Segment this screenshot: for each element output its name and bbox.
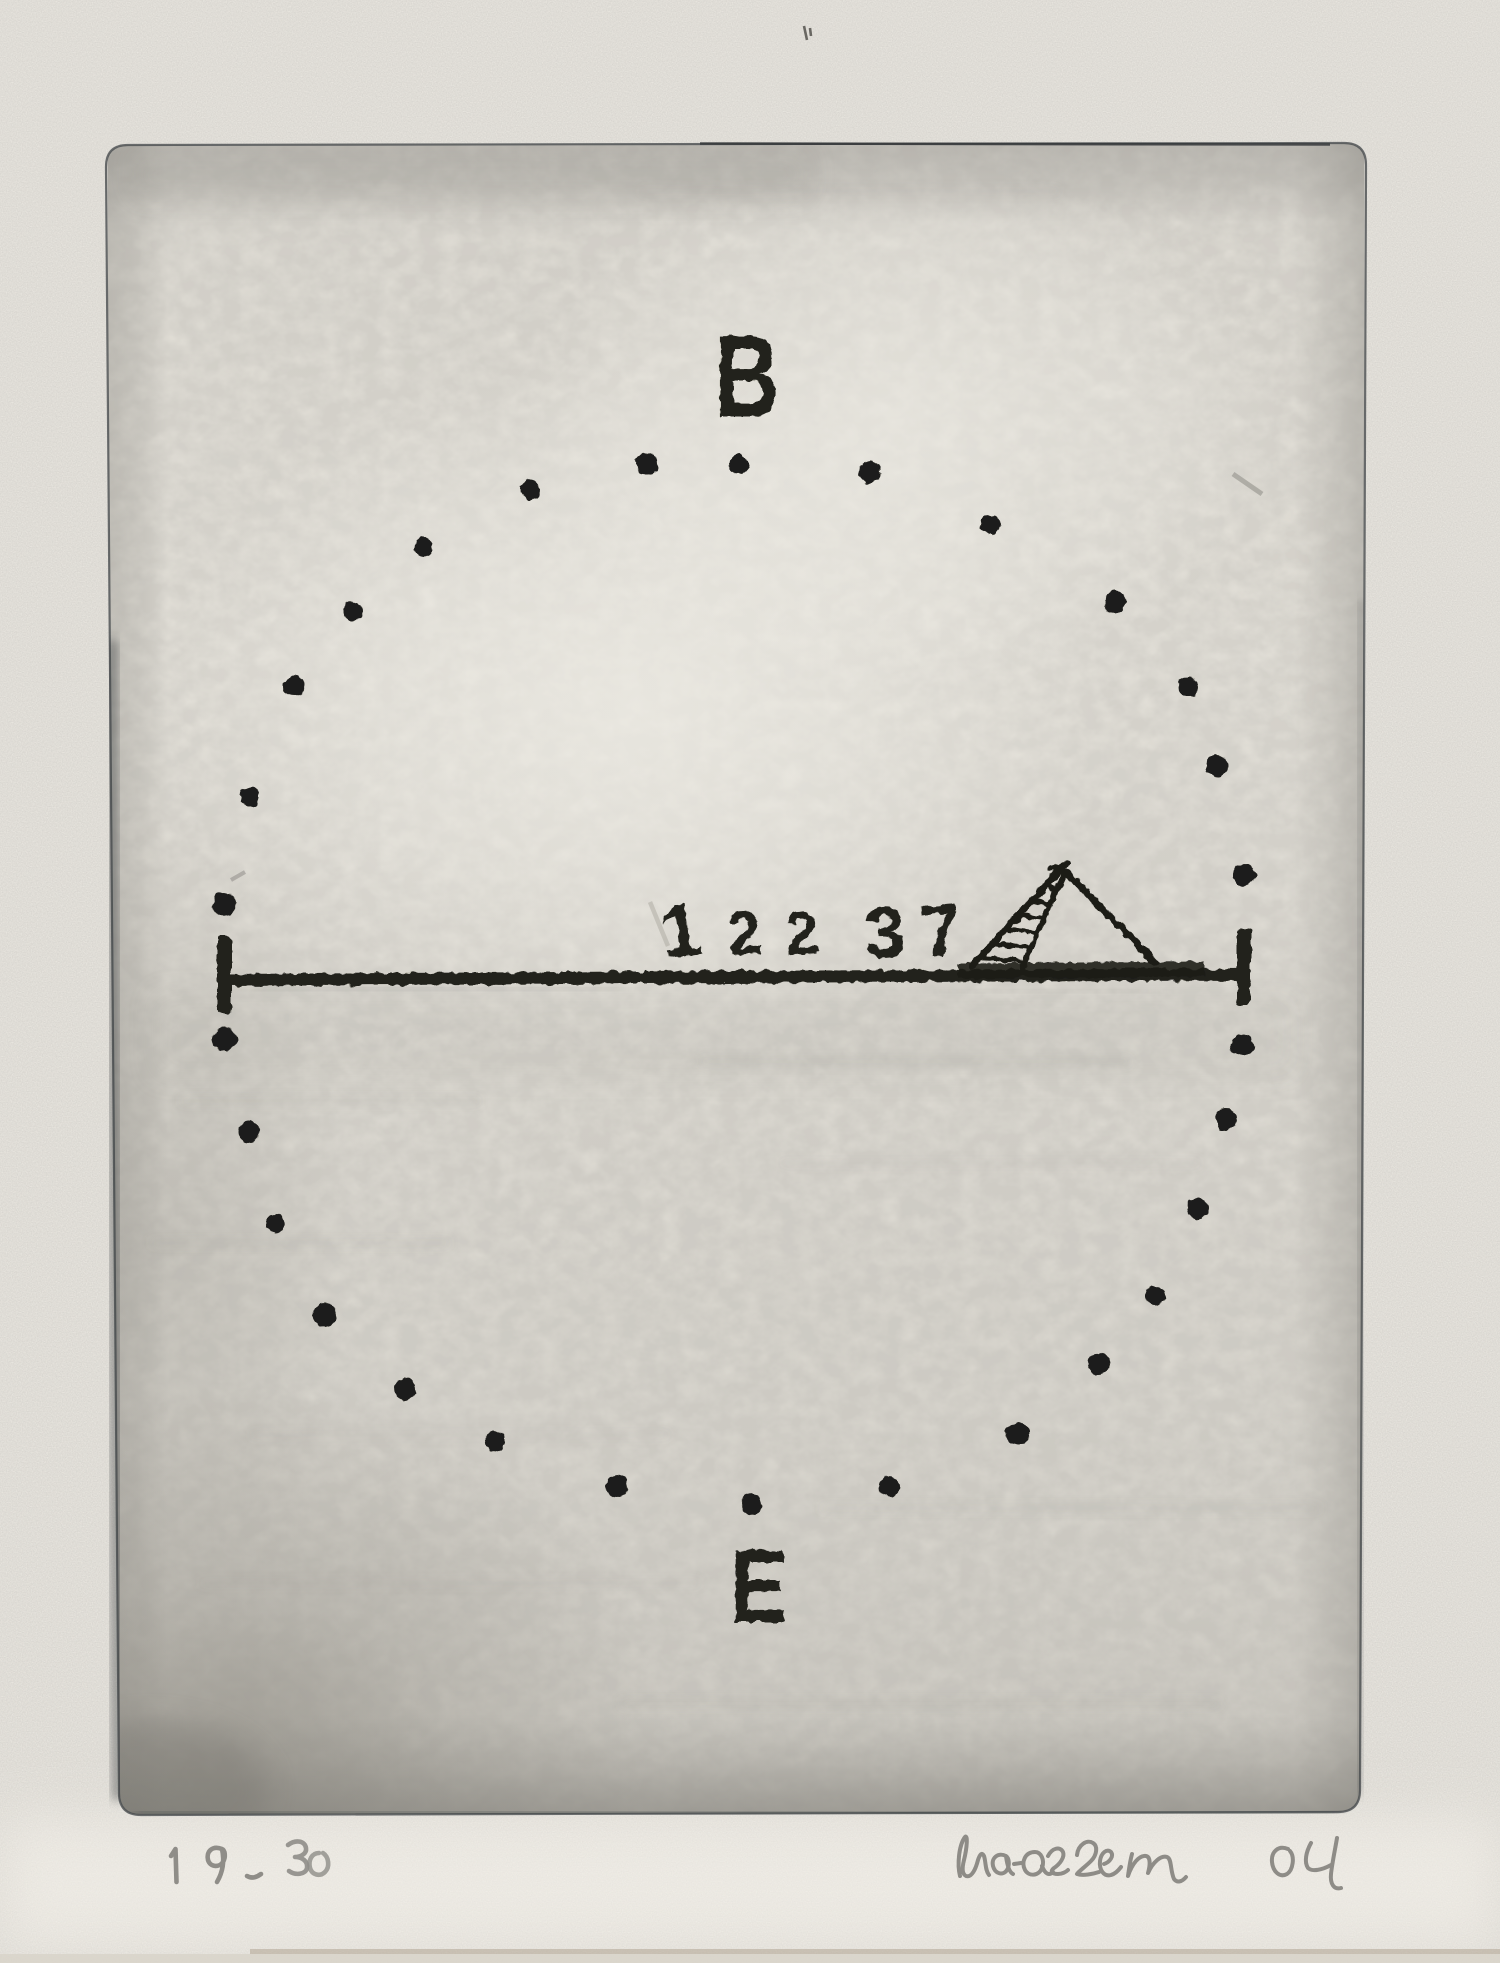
svg-text:E: E xyxy=(730,1529,788,1645)
svg-text:7: 7 xyxy=(917,887,967,974)
svg-text:2: 2 xyxy=(725,898,764,969)
svg-text:2: 2 xyxy=(783,898,820,968)
svg-text:3: 3 xyxy=(864,892,907,973)
svg-text:B: B xyxy=(714,312,779,441)
